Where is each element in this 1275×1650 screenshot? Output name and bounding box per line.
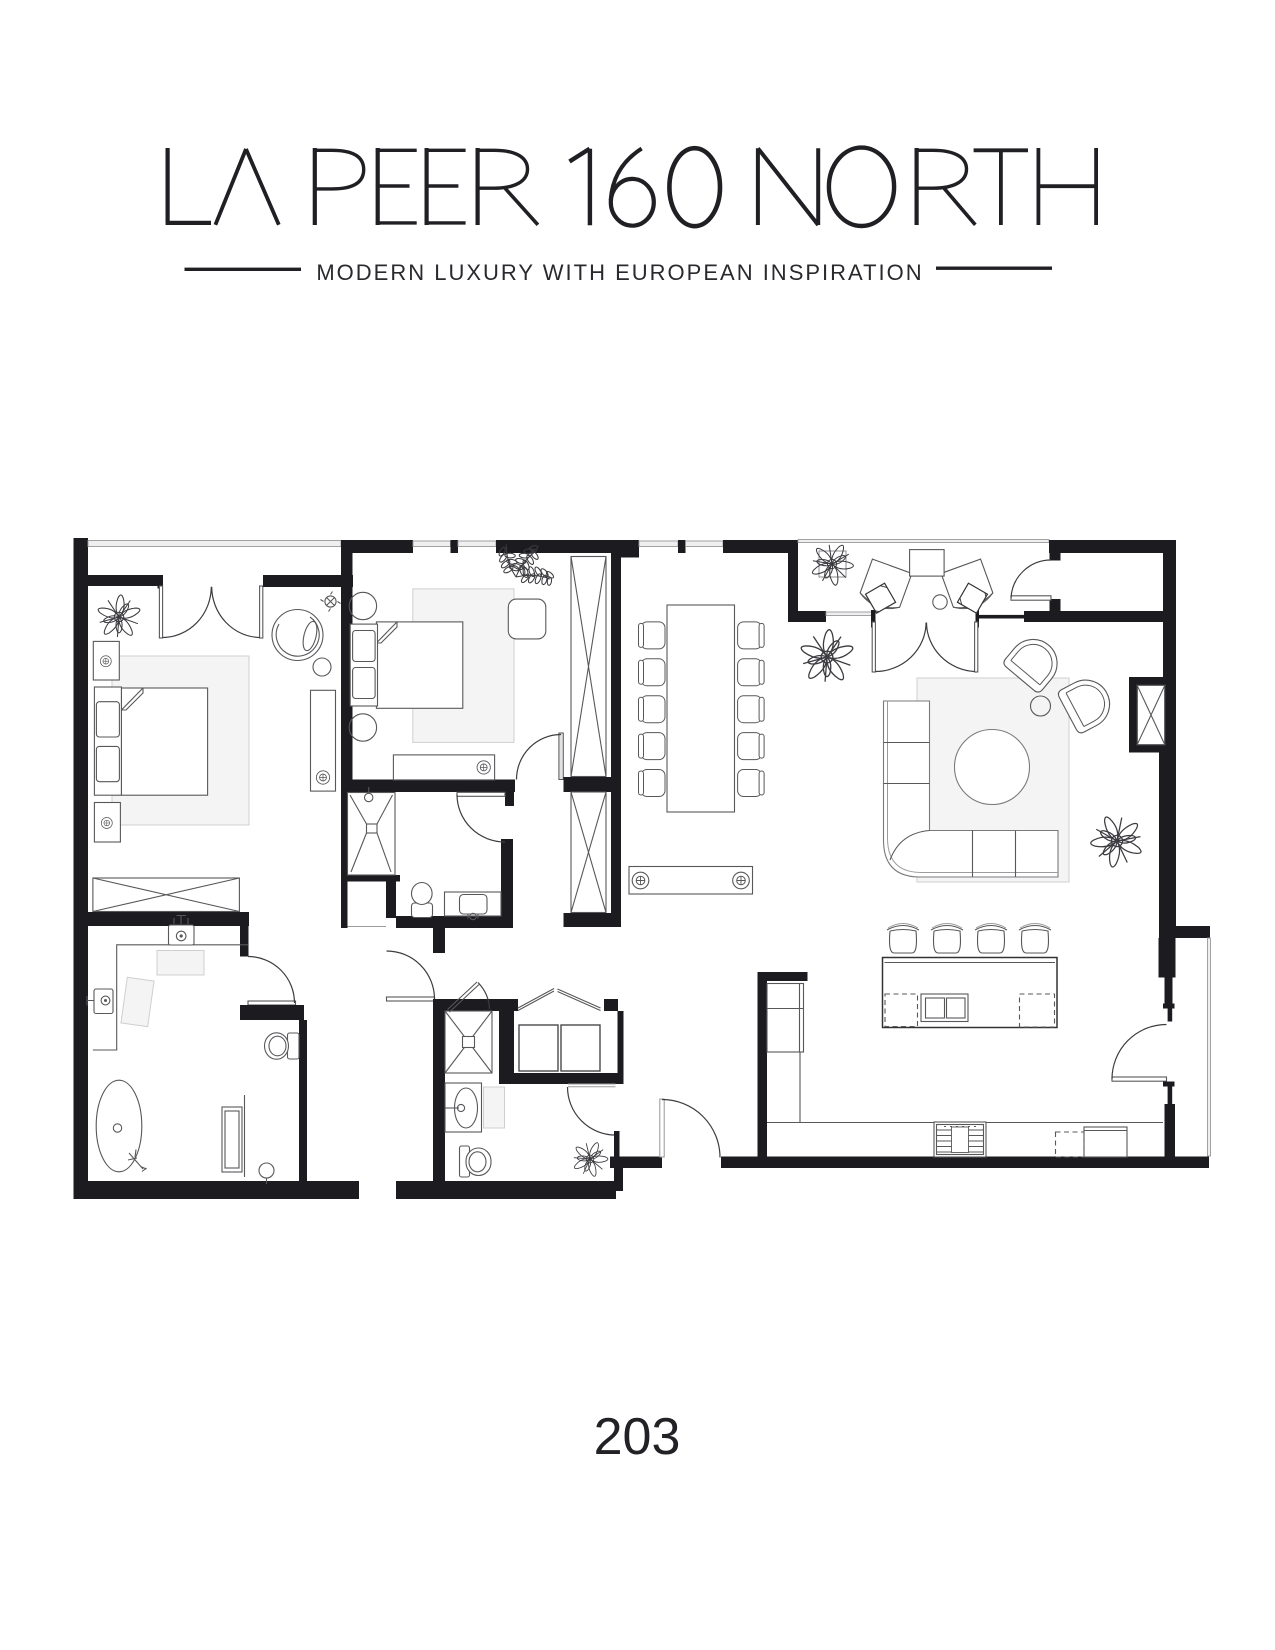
svg-text:MODERN LUXURY WITH EUROPEAN IN: MODERN LUXURY WITH EUROPEAN INSPIRATION [316, 260, 923, 285]
svg-text:203: 203 [594, 1408, 681, 1466]
